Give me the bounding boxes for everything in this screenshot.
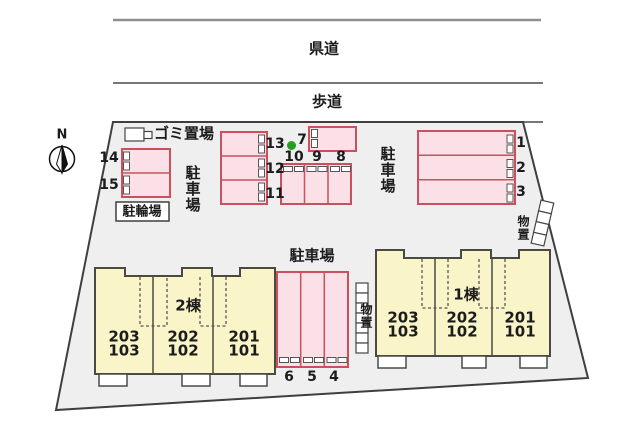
- compass-north-label: N: [57, 129, 68, 142]
- site-plan: 県道 歩道 N ゴミ置場 駐輪場 駐車場 駐車場 駐車場 物置 物置 1 2 3…: [0, 0, 640, 427]
- site-plan-drawing: [0, 0, 640, 427]
- parking-lot-label-left: 駐車場: [185, 165, 200, 213]
- garbage-area-label: ゴミ置場: [154, 127, 214, 142]
- road-label-sidewalk: 歩道: [312, 95, 342, 110]
- parking-space-number-5: 5: [307, 370, 317, 384]
- parking-block-13-12-11: [221, 132, 267, 204]
- building-2-unit-101: 101: [228, 344, 259, 359]
- parking-space-number-10: 10: [284, 150, 303, 164]
- parking-space-number-12: 12: [265, 162, 284, 176]
- parking-space-number-3: 3: [516, 185, 526, 199]
- storage-label-right: 物置: [517, 215, 529, 241]
- building-1-unit-102: 102: [446, 325, 477, 340]
- parking-space-number-11: 11: [265, 187, 284, 201]
- parking-block-14-15: [122, 149, 170, 197]
- parking-space-number-13: 13: [265, 137, 284, 151]
- building-1-name: 1棟: [453, 288, 478, 303]
- parking-space-number-1: 1: [516, 136, 526, 150]
- parking-space-number-4: 4: [329, 370, 339, 384]
- parking-space-number-6: 6: [284, 370, 294, 384]
- parking-lot-label-bottom: 駐車場: [289, 249, 334, 264]
- building-2-name: 2棟: [175, 299, 200, 314]
- parking-block-10-9-8: [281, 164, 351, 204]
- parking-lot-label-right: 駐車場: [380, 146, 395, 194]
- storage-label-left: 物置: [360, 303, 372, 329]
- building-1-unit-101: 101: [504, 325, 535, 340]
- parking-space-number-8: 8: [336, 150, 346, 164]
- building-1-unit-103: 103: [387, 325, 418, 340]
- building-2-unit-102: 102: [167, 344, 198, 359]
- parking-space-number-15: 15: [99, 178, 118, 192]
- parking-space-number-7: 7: [297, 133, 307, 147]
- compass-icon: [50, 145, 75, 173]
- building-2-unit-103: 103: [108, 344, 139, 359]
- parking-space-number-14: 14: [99, 151, 118, 165]
- road-label-prefectural: 県道: [309, 42, 339, 57]
- parking-block-1-2-3: [418, 131, 515, 204]
- parking-space-number-2: 2: [516, 161, 526, 175]
- bicycle-parking-label: 駐輪場: [122, 206, 161, 219]
- parking-space-number-9: 9: [312, 150, 322, 164]
- parking-space-7-stall: [309, 127, 356, 151]
- parking-block-6-5-4: [277, 272, 348, 367]
